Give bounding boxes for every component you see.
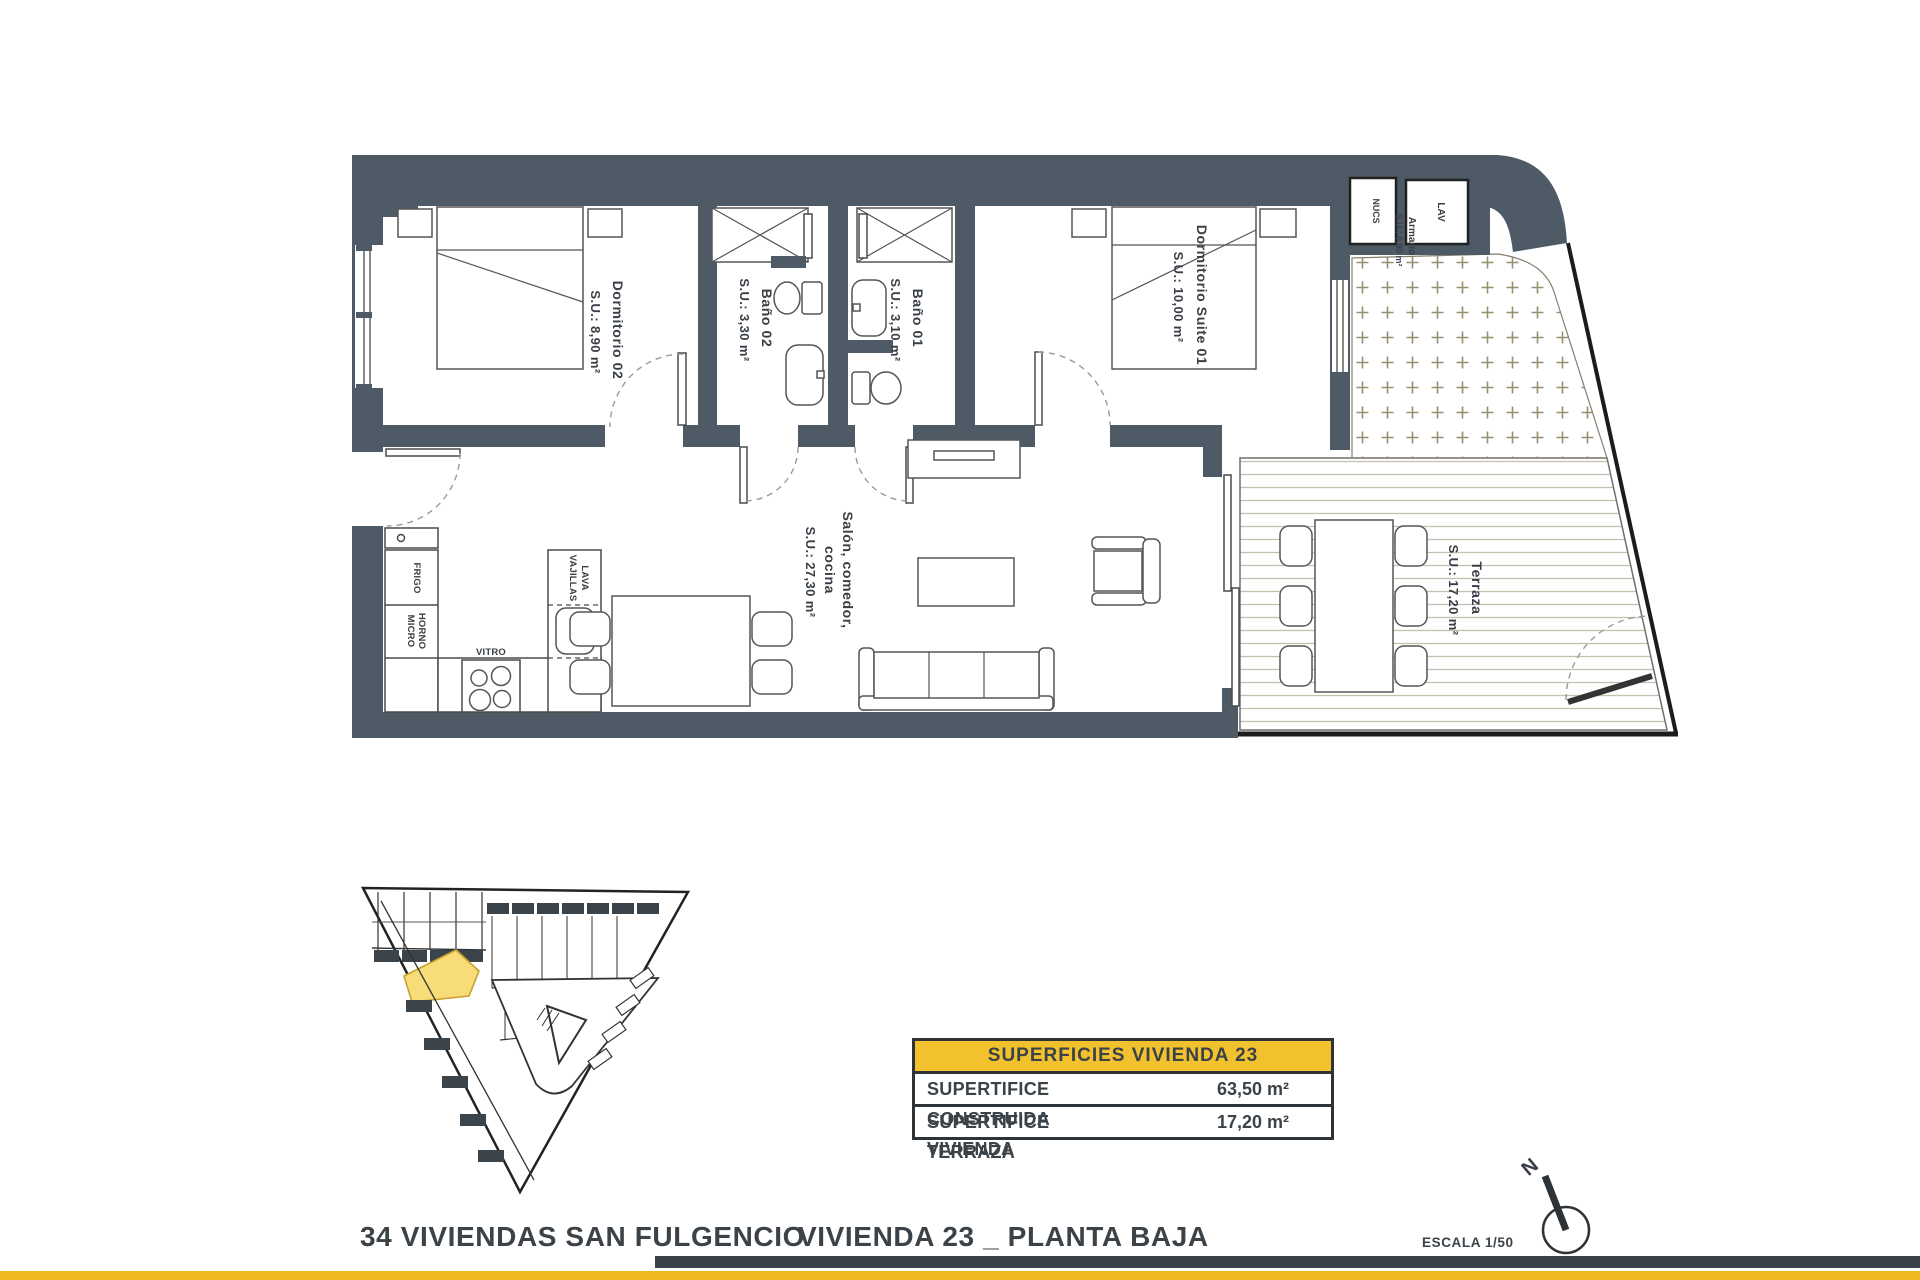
- dining-table: [612, 596, 750, 706]
- burner: [492, 667, 511, 686]
- partition-stub: [771, 256, 806, 268]
- left-exterior-wall: [352, 155, 383, 245]
- room-area-dormitorio02: S.U.: 8,90 m²: [588, 290, 603, 373]
- suite-door-arc: [1038, 352, 1110, 425]
- sofa-seat: [874, 652, 1039, 698]
- appliance-label-vajillas: VAJILLAS: [567, 555, 578, 602]
- room-label-terraza: Terraza: [1469, 562, 1485, 615]
- armchair-seat: [1094, 551, 1142, 591]
- armchair-arm: [1092, 537, 1146, 549]
- dorm02-door-leaf: [678, 353, 686, 425]
- nightstand: [1260, 209, 1296, 237]
- left-exterior-wall: [352, 388, 383, 452]
- suite-window-opening: [1332, 278, 1348, 374]
- room-area-salon: S.U.: 27,30 m²: [803, 527, 818, 618]
- unit-number-badge: [637, 903, 659, 914]
- living-furniture: [570, 440, 1160, 710]
- north-arrow-needle: [1545, 1176, 1566, 1230]
- wall-bath02-bath01: [828, 206, 848, 425]
- room-area-bath02: S.U.: 3,30 m²: [737, 278, 752, 361]
- unit-number-badge: [612, 903, 634, 914]
- room-label-bath02: Baño 02: [759, 289, 775, 348]
- entry-door-leaf: [386, 449, 460, 456]
- coffee-table: [918, 558, 1014, 606]
- toilet-bowl-bath02: [774, 282, 800, 314]
- unit-number-badge: [512, 903, 534, 914]
- site-plan: [363, 888, 688, 1192]
- terrace-chair: [1395, 586, 1427, 626]
- terrace: [1236, 243, 1678, 734]
- armario-label: Armario: [1406, 217, 1417, 255]
- surfaces-table-row: SUPERTIFICE TERRAZA 17,20 m²: [915, 1104, 1331, 1137]
- unit-number-badge: [587, 903, 609, 914]
- bath02-door-leaf: [740, 447, 747, 503]
- surface-row-label: SUPERTIFICE TERRAZA: [915, 1107, 1139, 1137]
- dining-chair: [570, 612, 610, 646]
- surface-row-value: 63,50 m²: [1139, 1074, 1331, 1104]
- sliding-door-panel: [1224, 475, 1231, 591]
- footer-dark-bar: [655, 1256, 1920, 1268]
- footer-yellow-bar: [0, 1271, 1920, 1280]
- partition-stub: [848, 340, 893, 353]
- toilet-bowl-bath01: [871, 372, 901, 404]
- dining-chair: [752, 612, 792, 646]
- bed-dorm02: [437, 207, 583, 369]
- bath01-door-arc: [855, 447, 909, 501]
- room-label-suite01: Dormitorio Suite 01: [1194, 225, 1210, 366]
- entry-door-arc: [387, 453, 460, 526]
- unit-number-badge: [478, 1150, 504, 1162]
- dining-chair: [752, 660, 792, 694]
- unit-number-badge: [442, 1076, 468, 1088]
- unit-number-badge: [374, 950, 399, 962]
- armchair-arm: [1092, 593, 1146, 605]
- north-arrow-n: N: [1518, 1154, 1543, 1180]
- sink-tap: [853, 304, 860, 311]
- burner: [470, 690, 491, 711]
- unit-number-badge: [562, 903, 584, 914]
- left-exterior-wall: [352, 526, 383, 738]
- unit-number-badge: [406, 1000, 432, 1012]
- suite-bottom-wall: [1110, 425, 1210, 447]
- appliance-label-lava: LAVA: [579, 565, 590, 590]
- scale-label: ESCALA 1/50: [1422, 1235, 1514, 1250]
- shower-glass: [859, 214, 867, 258]
- terrace-dining-table: [1315, 520, 1393, 692]
- burner: [471, 670, 487, 686]
- terrace-chair: [1395, 646, 1427, 686]
- window-cap: [356, 384, 372, 390]
- bath-bottom-wall: [798, 425, 855, 447]
- living-terrace-elbow: [1203, 425, 1222, 477]
- unit-number-badge: [424, 1038, 450, 1050]
- sheet-title: VIVIENDA 23 _ PLANTA BAJA: [798, 1221, 1209, 1253]
- suite-window-cap: [1330, 372, 1350, 378]
- surfaces-table: SUPERFICIES VIVIENDA 23 SUPERTIFICE CONS…: [912, 1038, 1334, 1140]
- nucs-label: NUCS: [1371, 199, 1381, 224]
- terrace-chair: [1280, 586, 1312, 626]
- dining-chair: [570, 660, 610, 694]
- sink-tap: [817, 371, 824, 378]
- unit-number-badge: [460, 1114, 486, 1126]
- room-label-salon-line2: cocina: [822, 546, 838, 594]
- toilet-tank-bath01: [852, 372, 870, 404]
- terrace-chair: [1395, 526, 1427, 566]
- room-area-terraza: S.U.: 17,20 m²: [1446, 545, 1461, 636]
- wall-bath01-suite: [955, 206, 975, 425]
- surface-row-label: SUPERTIFICE CONSTRUIDA VIVIENDA: [915, 1074, 1139, 1104]
- project-title: 34 VIVIENDAS SAN FULGENCIO: [360, 1221, 805, 1253]
- lav-label: LAV: [1435, 202, 1446, 222]
- armchair-back: [1143, 539, 1160, 603]
- bath02-door-arc: [744, 447, 798, 501]
- room-area-bath01: S.U.: 3,10 m²: [888, 278, 903, 361]
- nightstand: [1072, 209, 1106, 237]
- nightstand: [398, 209, 432, 237]
- unit-number-badge: [487, 903, 509, 914]
- bedroom-bottom-wall: [683, 425, 740, 447]
- appliance-label-horno: HORNO: [416, 613, 427, 649]
- nightstand: [588, 209, 622, 237]
- window-cap: [356, 245, 372, 251]
- north-arrow: N: [1518, 1154, 1589, 1253]
- burner: [494, 691, 511, 708]
- armario-area-label: S.U.: 0,90 m²: [1394, 214, 1404, 267]
- appliance-label-vitro: VITRO: [476, 647, 506, 658]
- room-label-bath01: Baño 01: [910, 289, 926, 348]
- surfaces-table-row: SUPERTIFICE CONSTRUIDA VIVIENDA 63,50 m²: [915, 1074, 1331, 1104]
- appliance-label-frigo: FRIGO: [411, 562, 422, 593]
- window-outer-face: [352, 245, 355, 390]
- terrace-chair: [1280, 646, 1312, 686]
- sliding-door-panel: [1232, 588, 1239, 706]
- surfaces-table-header: SUPERFICIES VIVIENDA 23: [915, 1041, 1331, 1074]
- toilet-tank-bath02: [802, 282, 822, 314]
- shower-glass: [804, 214, 812, 258]
- unit-number-badge: [537, 903, 559, 914]
- bedroom-bottom-wall: [383, 425, 605, 447]
- appliance-label-micro: MICRO: [405, 615, 416, 648]
- room-label-salon-line1: Salón, comedor,: [840, 511, 856, 628]
- hall-console-slot: [934, 451, 994, 460]
- room-label-dormitorio02: Dormitorio 02: [610, 281, 626, 380]
- kitchen-mini-counter: [385, 528, 438, 548]
- unit-number-badge: [402, 950, 427, 962]
- bottom-exterior-wall: [352, 712, 1238, 738]
- terrace-hatch-area: [1352, 254, 1607, 458]
- suite-door-leaf: [1035, 352, 1042, 425]
- surface-row-value: 17,20 m²: [1139, 1107, 1331, 1137]
- window-cap: [356, 312, 372, 318]
- room-area-suite01: S.U.: 10,00 m²: [1171, 252, 1186, 343]
- suite-window-cap: [1330, 274, 1350, 280]
- terrace-chair: [1280, 526, 1312, 566]
